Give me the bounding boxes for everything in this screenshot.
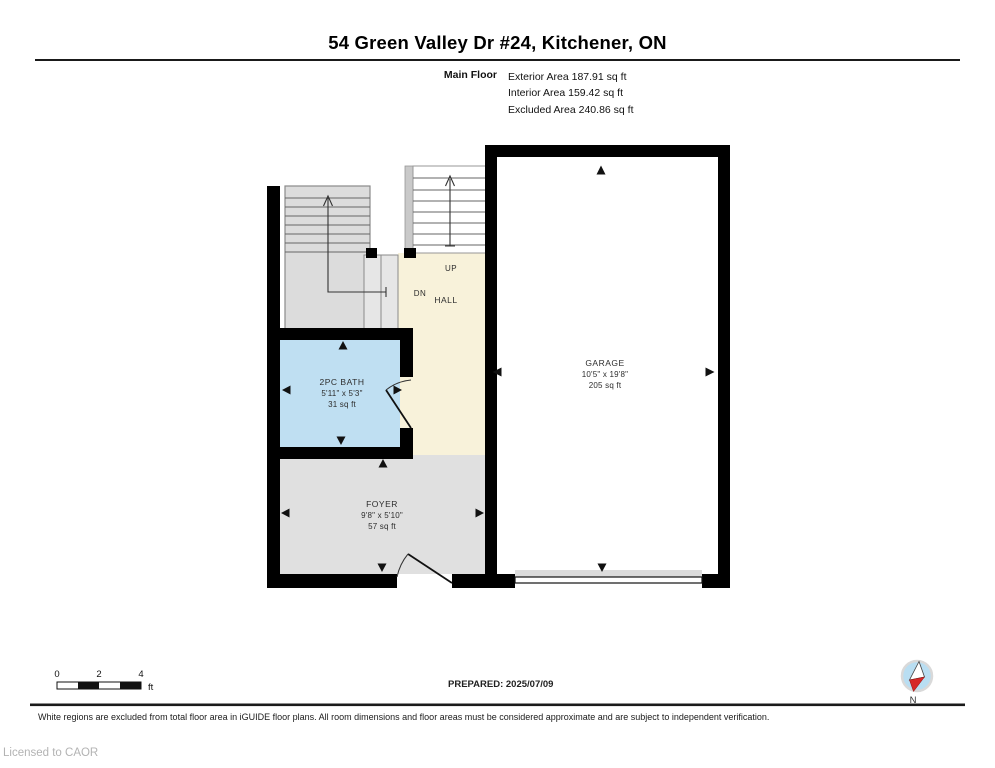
bath-foyer-wall — [267, 447, 413, 459]
scale-tick-4: 4 — [138, 669, 143, 680]
scale-bar: 0 2 4 ft — [54, 669, 153, 693]
bath-right-wall-upper — [400, 328, 413, 377]
foyer-dimensions: 9'8" x 5'10" — [361, 511, 403, 520]
compass-north-label: N — [910, 695, 917, 706]
garage-top-wall — [485, 145, 730, 157]
compass: N — [902, 661, 932, 706]
foyer-bottom-wall-left — [267, 574, 397, 588]
bath-area: 31 sq ft — [328, 400, 356, 409]
garage-label: GARAGE — [585, 358, 624, 368]
foyer-bottom-wall-right — [452, 574, 497, 588]
scale-bar-segment-2 — [120, 682, 141, 689]
garage-left-wall — [485, 157, 497, 574]
disclaimer-text: White regions are excluded from total fl… — [38, 712, 769, 722]
floorplan-page: 54 Green Valley Dr #24, Kitchener, ON Ma… — [0, 0, 995, 768]
scale-tick-0: 0 — [54, 669, 59, 680]
scale-tick-2: 2 — [96, 669, 101, 680]
license-text: Licensed to CAOR — [3, 747, 98, 759]
scale-bar-segment-1 — [78, 682, 99, 689]
foyer-label: FOYER — [366, 499, 398, 509]
garage-door-header — [515, 570, 702, 577]
garage-door — [515, 577, 702, 583]
scale-unit-label: ft — [148, 682, 154, 693]
bath-label: 2PC BATH — [320, 377, 365, 387]
bath-dimensions: 5'11" x 5'3" — [321, 389, 362, 398]
down-label: DN — [414, 289, 427, 298]
garage-right-wall — [718, 145, 730, 588]
hall-label: HALL — [434, 295, 457, 305]
garage-dimensions: 10'5" x 19'8" — [582, 370, 628, 379]
prepared-date: PREPARED: 2025/07/09 — [448, 679, 553, 690]
garage-area: 205 sq ft — [589, 381, 622, 390]
left-exterior-wall — [267, 186, 280, 588]
garage-bottom-right-wall — [702, 574, 730, 588]
foyer-area: 57 sq ft — [368, 522, 396, 531]
up-label: UP — [445, 264, 457, 273]
bath-top-wall — [267, 328, 413, 340]
wall-stub-stairs — [366, 248, 377, 258]
wall-stub-hall — [404, 248, 416, 258]
floorplan-drawing: GARAGE 10'5" x 19'8" 205 sq ft 2PC BATH … — [0, 0, 995, 768]
stairs-up-stringer — [405, 166, 413, 253]
footer-divider — [30, 704, 965, 707]
bath-right-wall-lower — [400, 428, 413, 459]
